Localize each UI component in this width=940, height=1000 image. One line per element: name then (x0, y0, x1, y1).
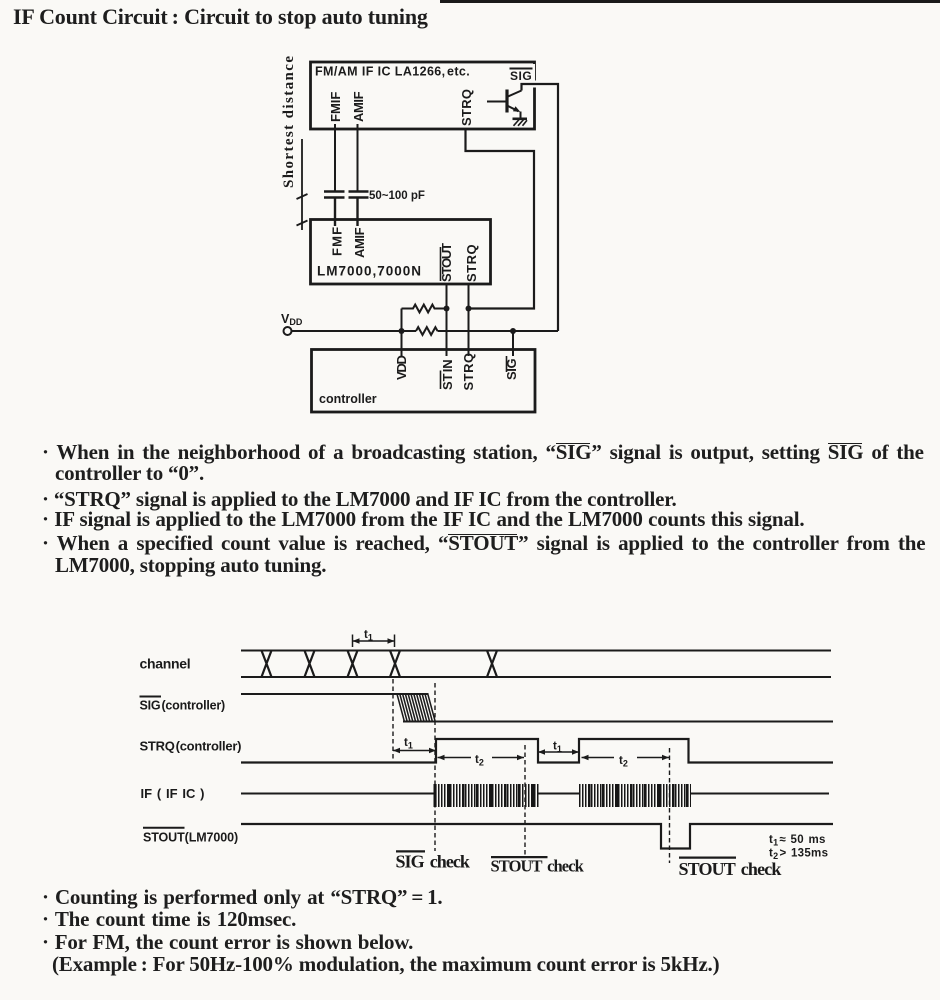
svg-text:t2> 135ms: t2> 135ms (769, 848, 828, 862)
svg-text:FM/AM IF IC LA1266, etc.: FM/AM IF IC LA1266, etc. (315, 65, 470, 79)
svg-text:IF ( IF IC ): IF ( IF IC ) (141, 786, 205, 801)
svg-text:t2: t2 (475, 754, 484, 768)
svg-text:t2: t2 (619, 755, 628, 769)
svg-text:AMIF: AMIF (351, 91, 366, 122)
svg-text:channel: channel (140, 656, 191, 672)
svg-text:SIG: SIG (510, 69, 532, 83)
svg-text:STRQ: STRQ (464, 244, 479, 282)
svg-text:t1: t1 (364, 629, 373, 643)
svg-text:50~100 pF: 50~100 pF (369, 190, 425, 202)
svg-text:STRQ(controller): STRQ(controller) (140, 739, 242, 754)
svg-text:STOUT check: STOUT check (491, 856, 585, 875)
svg-text:t1: t1 (553, 741, 562, 755)
svg-text:STRQ: STRQ (461, 352, 476, 390)
svg-text:Shortest distance: Shortest distance (281, 55, 297, 188)
svg-text:FMIF: FMIF (328, 92, 343, 122)
svg-text:STOUT check: STOUT check (679, 859, 782, 879)
svg-text:ST IN: ST IN (440, 359, 455, 390)
svg-text:VDD: VDD (394, 356, 409, 380)
svg-text:LM7000,7000N: LM7000,7000N (317, 264, 422, 279)
svg-text:t1: t1 (404, 737, 413, 751)
svg-text:STOUT(LM7000): STOUT(LM7000) (143, 831, 238, 845)
svg-text:SIG(controller): SIG(controller) (140, 699, 226, 713)
svg-text:AMIF: AMIF (352, 227, 367, 258)
svg-text:SIG check: SIG check (396, 852, 470, 872)
svg-text:STRQ: STRQ (459, 89, 474, 126)
svg-text:controller: controller (319, 392, 377, 406)
svg-text:t1≈ 50 ms: t1≈ 50 ms (769, 834, 826, 848)
svg-text:VDD: VDD (281, 312, 303, 327)
svg-text:FMF: FMF (330, 226, 345, 256)
